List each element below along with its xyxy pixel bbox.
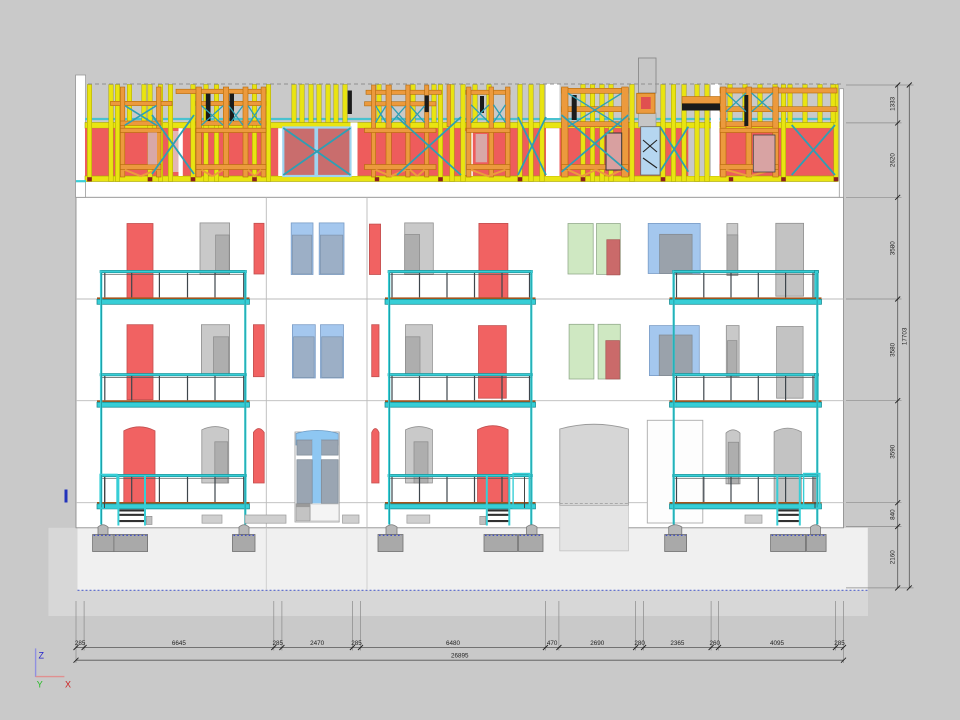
svg-text:4095: 4095 xyxy=(770,640,785,647)
svg-text:470: 470 xyxy=(547,640,558,647)
svg-text:285: 285 xyxy=(273,640,284,647)
svg-text:285: 285 xyxy=(75,640,86,647)
svg-text:6480: 6480 xyxy=(446,640,461,647)
svg-text:17703: 17703 xyxy=(901,327,908,345)
svg-text:3580: 3580 xyxy=(890,241,897,256)
svg-text:285: 285 xyxy=(834,640,845,647)
svg-text:2365: 2365 xyxy=(670,640,685,647)
svg-text:2160: 2160 xyxy=(890,550,897,565)
svg-text:260: 260 xyxy=(710,640,721,647)
svg-text:6645: 6645 xyxy=(172,640,187,647)
svg-text:3590: 3590 xyxy=(890,444,897,459)
svg-text:26895: 26895 xyxy=(451,653,469,660)
svg-text:840: 840 xyxy=(890,509,897,520)
svg-text:2470: 2470 xyxy=(310,640,325,647)
svg-text:Y: Y xyxy=(37,680,43,690)
svg-text:Z: Z xyxy=(39,651,45,661)
svg-text:2620: 2620 xyxy=(890,153,897,168)
svg-text:280: 280 xyxy=(634,640,645,647)
svg-text:3580: 3580 xyxy=(890,342,897,357)
svg-text:1333: 1333 xyxy=(890,96,897,111)
svg-text:2690: 2690 xyxy=(590,640,605,647)
svg-text:X: X xyxy=(65,680,71,690)
svg-text:285: 285 xyxy=(351,640,362,647)
